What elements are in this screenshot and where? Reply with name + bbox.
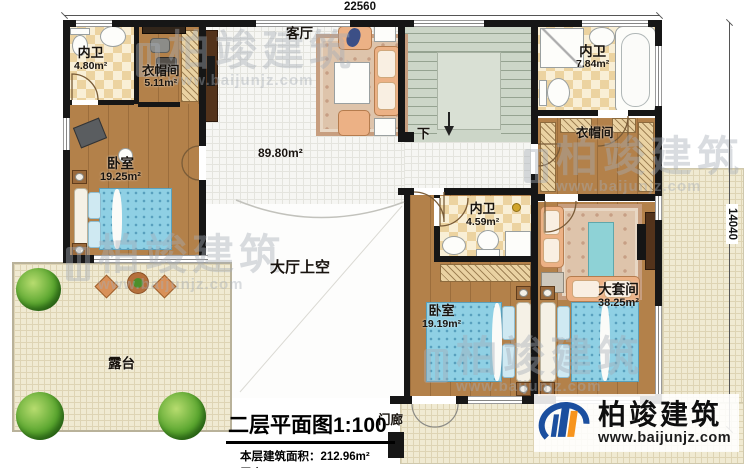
sofa-cushion	[572, 280, 600, 298]
room-area: 89.80m²	[258, 147, 303, 160]
bed-sheet-fold	[600, 303, 610, 381]
hall-void-floor	[205, 204, 404, 398]
dimension-top-value: 22560	[310, 1, 410, 13]
room-label-terrace: 露台	[108, 356, 135, 371]
title-block: 二层平面图1:100 本层建筑面积：212.96m² 层高：3.3m	[226, 409, 395, 468]
floor-area-line: 本层建筑面积：212.96m²	[240, 448, 395, 464]
brand-website: www.baijunjz.com	[598, 430, 731, 446]
room-area: 38.25m²	[598, 297, 639, 309]
hall-area-label: 89.80m²	[258, 147, 303, 160]
door-opening	[414, 188, 444, 195]
room-name: 大厅上空	[270, 260, 330, 277]
wall	[199, 20, 206, 258]
window	[655, 306, 662, 394]
nightstand	[516, 382, 531, 396]
room-label-bedroom-left: 卧室 19.25m²	[100, 156, 141, 183]
brand-logo: 柏竣建筑 www.baijunjz.com	[534, 394, 739, 452]
room-area: 5.11m²	[142, 78, 180, 90]
sofa-cushion	[543, 210, 560, 235]
room-name: 卧室	[100, 156, 141, 171]
room-name: 露台	[108, 356, 135, 371]
room-name: 内卫	[576, 44, 609, 59]
room-area: 7.84m²	[576, 59, 609, 71]
tv	[637, 224, 646, 260]
nightstand	[540, 286, 555, 300]
window	[655, 46, 662, 106]
wall	[134, 26, 139, 104]
vanity-counter	[505, 231, 531, 257]
french-door-opening	[412, 396, 456, 404]
room-label-bath-middle: 内卫 4.59m²	[466, 202, 499, 228]
pillow	[88, 221, 101, 248]
toilet	[70, 28, 90, 35]
room-label-hall-void: 大厅上空	[270, 260, 330, 277]
room-label-bedroom-bottom: 卧室 19.19m²	[422, 304, 461, 330]
closet-shelf	[440, 264, 531, 282]
bed-sheet-fold	[492, 303, 502, 381]
room-label-living: 客厅	[286, 26, 313, 41]
armchair	[338, 110, 370, 136]
door-opening	[199, 146, 206, 180]
window	[655, 196, 662, 220]
brand-name: 柏竣建筑	[598, 400, 731, 429]
room-name: 大套间	[598, 282, 639, 297]
wall	[390, 396, 404, 404]
pillow	[557, 344, 570, 378]
wardrobe	[638, 122, 654, 192]
room-name: 卧室	[422, 304, 461, 319]
room-area: 4.80m²	[74, 61, 107, 73]
pillow	[502, 306, 515, 340]
door-opening	[72, 100, 98, 105]
sofa-cushion	[377, 82, 396, 110]
window	[468, 396, 522, 404]
stair-treads-top	[404, 24, 531, 52]
tv	[207, 56, 215, 86]
pillow	[88, 192, 101, 219]
window	[582, 20, 648, 27]
sliding-door	[94, 255, 208, 263]
pillow	[557, 306, 570, 340]
stair-landing	[437, 52, 501, 130]
room-label-bath-top-right: 内卫 7.84m²	[576, 44, 609, 71]
bed-headboard	[516, 302, 531, 382]
nightstand	[516, 286, 531, 300]
bed-headboard	[540, 302, 556, 382]
bed	[99, 188, 172, 250]
coffee-table	[334, 62, 370, 104]
wall	[398, 132, 414, 142]
wardrobe	[612, 118, 636, 133]
window	[414, 20, 484, 27]
drawing-scale: 1:100	[333, 414, 387, 437]
bathtub-basin	[621, 33, 650, 107]
sink	[100, 26, 126, 47]
stairs-down-label: 下	[417, 127, 430, 142]
room-area: 19.25m²	[100, 171, 141, 183]
room-label-master-suite: 大套间 38.25m²	[598, 282, 639, 309]
dimension-line-top	[64, 15, 660, 16]
room-label-closet-top-left: 衣帽间 5.11m²	[142, 64, 180, 90]
bed-headboard	[74, 188, 88, 250]
sofa-cushion	[377, 50, 396, 78]
down-text: 下	[417, 127, 430, 142]
bed-sheet-fold	[112, 189, 122, 249]
room-name: 客厅	[286, 26, 313, 41]
door-opening	[545, 194, 578, 201]
pillow	[502, 344, 515, 378]
door-opening	[531, 144, 538, 174]
room-label-closet-right: 衣帽间	[576, 126, 614, 140]
light-fixture	[512, 203, 521, 212]
chair	[150, 38, 170, 53]
window	[76, 20, 112, 27]
toilet-bowl	[477, 230, 499, 251]
sofa-cushion	[543, 238, 560, 263]
wall	[404, 188, 410, 403]
room-area: 4.59m²	[466, 217, 499, 229]
room-label-bath-top-left: 内卫 4.80m²	[74, 46, 107, 72]
window	[63, 118, 70, 150]
room-name: 内卫	[74, 46, 107, 61]
suite-table	[588, 222, 614, 278]
room-name: 衣帽间	[142, 64, 180, 78]
wardrobe	[540, 122, 556, 192]
tree-icon	[16, 392, 64, 440]
brand-logo-icon	[538, 397, 592, 449]
wall	[138, 102, 180, 107]
plant-icon	[133, 278, 143, 288]
drawing-title-text: 二层平面图	[228, 414, 333, 437]
wall	[398, 20, 405, 142]
wall	[531, 20, 538, 398]
wall	[537, 110, 657, 116]
tree-icon	[16, 268, 61, 311]
wardrobe	[181, 30, 199, 102]
room-area: 19.19m²	[422, 319, 461, 331]
toilet-bowl	[547, 78, 570, 107]
wall	[63, 20, 662, 27]
room-name: 衣帽间	[576, 126, 614, 140]
dimension-right-value: 14040	[726, 204, 738, 244]
wall	[434, 256, 532, 262]
door-opening	[598, 110, 628, 116]
floor-plan: 柏竣建筑 www.baijunjz.com 柏竣建筑 www.baijunjz.…	[0, 0, 750, 468]
room-name: 内卫	[466, 202, 499, 217]
drawing-title: 二层平面图1:100	[226, 409, 395, 444]
stair-treads-right	[501, 52, 531, 142]
door-opening	[434, 198, 440, 226]
sink	[442, 236, 466, 255]
tree-icon	[158, 392, 206, 440]
toilet-tank	[539, 80, 547, 106]
side-table	[374, 118, 396, 136]
nightstand	[72, 170, 87, 184]
